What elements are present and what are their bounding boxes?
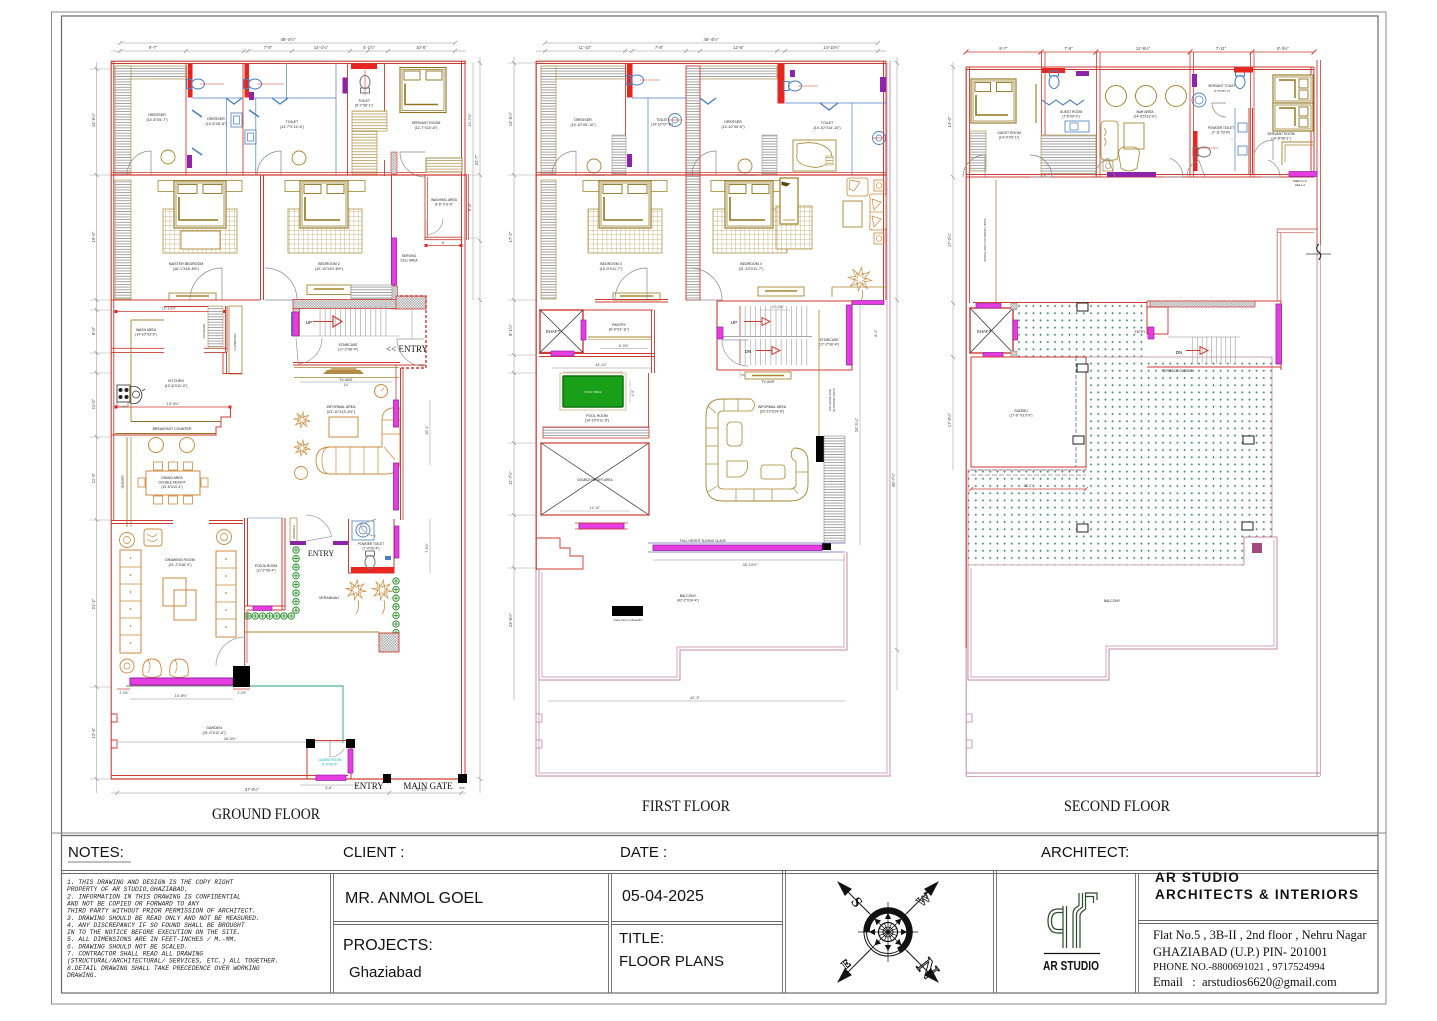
svg-text:INFORMAL AREA: INFORMAL AREA bbox=[326, 405, 356, 409]
svg-text:(7'-11"X3'-6"): (7'-11"X3'-6") bbox=[1212, 130, 1230, 134]
svg-text:17'-0½": 17'-0½" bbox=[947, 412, 952, 427]
svg-text:12'-6½": 12'-6½" bbox=[1136, 46, 1151, 51]
svg-text:7'-6": 7'-6" bbox=[1064, 46, 1073, 51]
svg-text:4. ANY DISCREPANCY IF SO FOUND: 4. ANY DISCREPANCY IF SO FOUND SHALL BE … bbox=[67, 922, 246, 929]
svg-text:DOUBLE HEIGHT: DOUBLE HEIGHT bbox=[159, 481, 186, 485]
svg-text:2'-0½": 2'-0½" bbox=[237, 691, 246, 695]
svg-text:7'-8": 7'-8" bbox=[264, 45, 273, 50]
svg-text:WASH AREA: WASH AREA bbox=[136, 328, 157, 332]
svg-text:ARCHITECTS & INTERIORS: ARCHITECTS & INTERIORS bbox=[1155, 887, 1359, 902]
svg-text:14'-6½": 14'-6½" bbox=[508, 111, 513, 126]
svg-text:7'-8": 7'-8" bbox=[655, 45, 664, 50]
svg-text:(42'-2"X24'-4"): (42'-2"X24'-4") bbox=[677, 599, 699, 603]
svg-text:VERANDAH: VERANDAH bbox=[319, 596, 339, 600]
svg-text:GUEST ROOM: GUEST ROOM bbox=[997, 131, 1021, 135]
svg-text:Email : arstudios6620@gmail: Email : arstudios6620@gmail.com bbox=[1153, 975, 1337, 989]
svg-text:21'-2": 21'-2" bbox=[91, 598, 96, 609]
svg-text:POOL TABLE: POOL TABLE bbox=[584, 390, 601, 394]
svg-text:(14'-0"X9'-1"): (14'-0"X9'-1") bbox=[999, 136, 1020, 140]
svg-text:8'-0": 8'-0" bbox=[91, 326, 96, 335]
svg-text:(11'-2"X8'-4"): (11'-2"X8'-4") bbox=[256, 569, 275, 573]
svg-text:ENTRY: ENTRY bbox=[308, 549, 334, 558]
svg-text:(14'-10"X3'-6"): (14'-10"X3'-6") bbox=[135, 333, 157, 337]
svg-text:AND NOT BE COPIED OR FORWARD T: AND NOT BE COPIED OR FORWARD TO ANY bbox=[66, 900, 200, 907]
svg-text:(14'-10"X5'-10"): (14'-10"X5'-10") bbox=[570, 123, 595, 127]
svg-text:5'-6"X6'-6": 5'-6"X6'-6" bbox=[322, 763, 338, 767]
svg-text:Flat No.5 , 3B-II , 2nd floor: Flat No.5 , 3B-II , 2nd floor , Nehru Na… bbox=[1153, 928, 1367, 942]
svg-text:7'-11": 7'-11" bbox=[1216, 46, 1227, 51]
svg-text:8'-1½": 8'-1½" bbox=[508, 324, 513, 336]
svg-text:7'-6½": 7'-6½" bbox=[425, 542, 429, 552]
svg-text:DRESSER: DRESSER bbox=[574, 118, 592, 122]
svg-text:False Floor to Beautiful: False Floor to Beautiful bbox=[614, 618, 643, 622]
svg-text:DRAWING.: DRAWING. bbox=[67, 972, 97, 979]
svg-text:8.DETAIL DRAWING SHALL TAKE PR: 8.DETAIL DRAWING SHALL TAKE PRECEDENCE O… bbox=[67, 965, 260, 972]
svg-text:13'-0½": 13'-0½" bbox=[167, 402, 180, 406]
svg-text:(14'-7"X 14'-6"): (14'-7"X 14'-6") bbox=[280, 125, 304, 129]
svg-text:PROPERTY OF AR STUDIO,GHAZIABA: PROPERTY OF AR STUDIO,GHAZIABAD. bbox=[67, 886, 188, 893]
svg-text:(10'-6"X13'-4"): (10'-6"X13'-4") bbox=[161, 485, 182, 489]
svg-text:5'-6": 5'-6" bbox=[325, 786, 333, 790]
svg-text:BREAKFAST COUNTER: BREAKFAST COUNTER bbox=[153, 427, 192, 431]
svg-text:FULL HEIGHT SLIDING GLASS: FULL HEIGHT SLIDING GLASS bbox=[680, 539, 726, 543]
svg-text:CELL-2: CELL-2 bbox=[1295, 183, 1306, 187]
svg-text:POOJA ROOM: POOJA ROOM bbox=[255, 564, 277, 568]
svg-text:6'-4": 6'-4" bbox=[467, 202, 472, 211]
svg-text:(12'-10"X10'-6½"): (12'-10"X10'-6½") bbox=[315, 267, 343, 271]
svg-text:2. INFORMATION IN THIS DRAWING: 2. INFORMATION IN THIS DRAWING IS CONFID… bbox=[67, 893, 241, 900]
svg-text:(STRUCTURAL/ARCHITECTURAL/ SER: (STRUCTURAL/ARCHITECTURAL/ SERVICES, ETC… bbox=[67, 958, 279, 965]
svg-text:46'-7½": 46'-7½" bbox=[891, 472, 896, 487]
svg-text:PROJECTS:: PROJECTS: bbox=[343, 937, 433, 954]
svg-text:□: □ bbox=[1231, 137, 1233, 141]
svg-text:MAIN GATE: MAIN GATE bbox=[403, 781, 453, 791]
svg-text:Ghaziabad: Ghaziabad bbox=[349, 964, 422, 981]
svg-text:INFORMAL AREA: INFORMAL AREA bbox=[758, 405, 787, 409]
svg-text:DN: DN bbox=[1176, 350, 1183, 355]
svg-text:6. DRAWING SHOULD NOT BE SCALE: 6. DRAWING SHOULD NOT BE SCALED. bbox=[67, 943, 188, 950]
svg-text:TV UNIT: TV UNIT bbox=[761, 380, 774, 384]
svg-text:11'-10": 11'-10" bbox=[579, 45, 592, 50]
svg-text:14': 14' bbox=[344, 383, 349, 387]
svg-text:800: 800 bbox=[459, 786, 464, 790]
svg-text:TOILET: TOILET bbox=[358, 99, 370, 103]
svg-text:(20'-10"X24'-0"): (20'-10"X24'-0") bbox=[760, 410, 784, 414]
svg-text:(14'-8"X8'-1"): (14'-8"X8'-1") bbox=[1271, 137, 1291, 141]
svg-text:42'-3": 42'-3" bbox=[690, 696, 700, 700]
svg-text:8'-7": 8'-7" bbox=[999, 46, 1008, 51]
svg-text:GROUND FLOOR: GROUND FLOOR bbox=[212, 806, 321, 823]
svg-text:26'-0½": 26'-0½" bbox=[224, 737, 237, 741]
svg-text:BAR AREA: BAR AREA bbox=[1137, 110, 1155, 114]
svg-text:12'-7½": 12'-7½" bbox=[467, 113, 472, 127]
svg-text:(7'-4"X5'-4"): (7'-4"X5'-4") bbox=[363, 546, 380, 550]
svg-text:PHONE NO.-8800691021 , 9717524: PHONE NO.-8800691021 , 9717524994 bbox=[1153, 962, 1326, 973]
svg-text:49'-4½": 49'-4½" bbox=[703, 36, 719, 42]
svg-text:6': 6' bbox=[442, 241, 445, 245]
svg-text:POWDER TOILET: POWDER TOILET bbox=[358, 542, 384, 546]
svg-text:CLIENT :: CLIENT : bbox=[343, 844, 404, 861]
svg-text:(7'-6"X9'-0"): (7'-6"X9'-0") bbox=[1062, 115, 1080, 119]
svg-text:SERVER: SERVER bbox=[121, 475, 125, 489]
svg-text:TV UNIT: TV UNIT bbox=[339, 378, 352, 382]
svg-text:(14'-6"X5'-7"): (14'-6"X5'-7") bbox=[146, 118, 167, 122]
svg-text:FIRST FLOOR: FIRST FLOOR bbox=[642, 798, 731, 815]
svg-text:SECOND FLOOR: SECOND FLOOR bbox=[1064, 798, 1171, 815]
svg-text:GAZEBO: GAZEBO bbox=[1014, 409, 1028, 413]
svg-text:8'-6" X 6'-6": 8'-6" X 6'-6" bbox=[435, 203, 453, 207]
svg-text:BEDROOM 4: BEDROOM 4 bbox=[740, 262, 762, 266]
svg-text:NOTES:: NOTES: bbox=[68, 844, 124, 861]
svg-text:(21'-2"X16'-0"): (21'-2"X16'-0") bbox=[168, 563, 191, 567]
svg-text:SERVING: SERVING bbox=[402, 254, 417, 258]
svg-text:(14'-6"X5'-6"): (14'-6"X5'-6") bbox=[205, 122, 226, 126]
svg-text:IN TO THE NOTICE BEFORE EXECUT: IN TO THE NOTICE BEFORE EXECUTION ON THE… bbox=[67, 929, 241, 936]
svg-text:10'-6": 10'-6" bbox=[416, 45, 427, 50]
svg-text:GUARD ROOM: GUARD ROOM bbox=[318, 758, 341, 762]
svg-text:DOUBLE HEIGHT AREA: DOUBLE HEIGHT AREA bbox=[577, 478, 613, 482]
svg-text:ENTRY: ENTRY bbox=[354, 781, 384, 791]
svg-text:(17'-6" X3.0'-9"): (17'-6" X3.0'-9") bbox=[1009, 414, 1032, 418]
svg-text:14'-10": 14'-10" bbox=[595, 363, 607, 367]
svg-text:DRESSER: DRESSER bbox=[148, 113, 166, 117]
svg-text:6'-4": 6'-4" bbox=[874, 329, 878, 337]
svg-text:16'-0": 16'-0" bbox=[91, 231, 96, 242]
svg-text:(12'-6"X11'-0"): (12'-6"X11'-0") bbox=[165, 384, 188, 388]
svg-text:CELL AREA: CELL AREA bbox=[400, 258, 418, 262]
svg-text:05-04-2025: 05-04-2025 bbox=[622, 888, 704, 905]
svg-text:SPACE FOR OUTDOOR UNITS: SPACE FOR OUTDOOR UNITS bbox=[983, 218, 987, 261]
svg-text:12'-6": 12'-6" bbox=[733, 45, 744, 50]
svg-text:STAIRCASE: STAIRCASE bbox=[820, 338, 840, 342]
svg-text:28'-10½": 28'-10½" bbox=[743, 563, 759, 567]
svg-text:DATE :: DATE : bbox=[620, 844, 667, 861]
svg-text:14'-6½": 14'-6½" bbox=[91, 112, 96, 127]
svg-text:(17'-2"X8'-4"): (17'-2"X8'-4") bbox=[819, 343, 839, 347]
svg-text:37'-0½": 37'-0½" bbox=[245, 787, 260, 792]
svg-text:18'-2": 18'-2" bbox=[1023, 484, 1033, 488]
svg-text:17'-2": 17'-2" bbox=[508, 231, 513, 242]
svg-text:UP: UP bbox=[731, 320, 737, 325]
svg-text:SHAFT: SHAFT bbox=[977, 329, 992, 334]
svg-text:(15'-0"X11'-7"): (15'-0"X11'-7") bbox=[600, 267, 623, 271]
svg-text:11'-7½": 11'-7½" bbox=[508, 471, 513, 485]
svg-text:GARDEN: GARDEN bbox=[206, 726, 222, 730]
svg-text:AR STUDIO: AR STUDIO bbox=[1155, 870, 1240, 885]
svg-text:DRESSER: DRESSER bbox=[724, 120, 742, 124]
svg-text:GHAZIABAD (U.P.) PIN- 201001: GHAZIABAD (U.P.) PIN- 201001 bbox=[1153, 945, 1328, 959]
svg-text:31'-7": 31'-7" bbox=[474, 154, 479, 165]
svg-text:DRESSER: DRESSER bbox=[207, 117, 225, 121]
svg-text:BALCONY: BALCONY bbox=[1104, 599, 1121, 603]
svg-text:SERVANT ROOM: SERVANT ROOM bbox=[1267, 132, 1294, 136]
svg-text:MASTER BEDROOM: MASTER BEDROOM bbox=[169, 262, 204, 266]
svg-text:TOILET: TOILET bbox=[821, 121, 834, 125]
svg-text:5. ALL DIMENSIONS ARE IN FEET-: 5. ALL DIMENSIONS ARE IN FEET-INCHES / M… bbox=[67, 936, 237, 943]
svg-text:BEDROOM 2: BEDROOM 2 bbox=[318, 262, 340, 266]
svg-text:(14'-6")X12'-6"): (14'-6")X12'-6") bbox=[1134, 115, 1157, 119]
svg-text:17'-2½": 17'-2½" bbox=[772, 305, 785, 309]
svg-text:TERRACE GARDEN: TERRACE GARDEN bbox=[1162, 369, 1194, 373]
svg-text:(7'-5"X5'-7"): (7'-5"X5'-7") bbox=[1214, 89, 1230, 93]
svg-text:24'-1½": 24'-1½" bbox=[854, 417, 859, 432]
svg-text:OUTDOOR UNITS: OUTDOOR UNITS bbox=[832, 388, 836, 412]
svg-text:CONSOLE: CONSOLE bbox=[292, 525, 296, 539]
svg-text:2'-0½": 2'-0½" bbox=[119, 691, 128, 695]
svg-text:ENTRY: ENTRY bbox=[1135, 330, 1147, 334]
svg-text:<< ENTRY: << ENTRY bbox=[386, 344, 428, 354]
svg-text:14'-6": 14'-6" bbox=[947, 116, 952, 127]
svg-text:11'-5": 11'-5" bbox=[91, 472, 96, 483]
svg-text:(14'-10"X5'-6"): (14'-10"X5'-6") bbox=[721, 125, 744, 129]
svg-text:SERVANT ROOM: SERVANT ROOM bbox=[412, 121, 441, 125]
svg-text:7. CONTRACTOR SHALL READ ALL D: 7. CONTRACTOR SHALL READ ALL DRAWING bbox=[67, 951, 203, 958]
svg-text:TOILET: TOILET bbox=[656, 118, 668, 122]
svg-text:6'-9½": 6'-9½" bbox=[619, 344, 630, 348]
svg-text:MR. ANMOL GOEL: MR. ANMOL GOEL bbox=[345, 890, 483, 907]
svg-text:GUEST ROOM: GUEST ROOM bbox=[1060, 110, 1083, 114]
svg-text:(16'-1"X16'-8½"): (16'-1"X16'-8½") bbox=[173, 267, 199, 271]
svg-text:DRAWING ROOM: DRAWING ROOM bbox=[165, 558, 194, 562]
svg-text:TITLE:: TITLE: bbox=[619, 930, 664, 947]
svg-text:10'-8½": 10'-8½" bbox=[175, 694, 188, 698]
svg-text:KITCHEN: KITCHEN bbox=[168, 379, 184, 383]
svg-text:(6'-9"X3'-11"): (6'-9"X3'-11") bbox=[609, 328, 629, 332]
svg-text:8'-3½": 8'-3½" bbox=[1277, 46, 1289, 51]
svg-text:12'-6": 12'-6" bbox=[91, 727, 96, 738]
svg-text:POWDER TOILET: POWDER TOILET bbox=[1208, 126, 1234, 130]
svg-text:3. DRAWING SHOULD BE READ ONLY: 3. DRAWING SHOULD BE READ ONLY AND NOT B… bbox=[67, 915, 260, 922]
svg-text:4'-5": 4'-5" bbox=[631, 390, 635, 396]
svg-text:(23'-11"X13'-4½"): (23'-11"X13'-4½") bbox=[327, 410, 355, 414]
svg-text:THIRD PARTY WITHOUT PRIOR PERM: THIRD PARTY WITHOUT PRIOR PERMISSION OF … bbox=[67, 908, 256, 915]
svg-text:(17'-2"X8'-4"): (17'-2"X8'-4") bbox=[338, 348, 358, 352]
svg-text:STORAGE: STORAGE bbox=[202, 324, 206, 339]
svg-text:DINING AREA: DINING AREA bbox=[161, 476, 183, 480]
svg-text:20'-1": 20'-1" bbox=[425, 425, 429, 435]
svg-text:STAIRCASE: STAIRCASE bbox=[339, 343, 359, 347]
svg-text:4'-1½": 4'-1½" bbox=[363, 45, 375, 50]
svg-text:1. THIS DRAWING AND DESIGN I: 1. THIS DRAWING AND DESIGN IS THE COPY R… bbox=[67, 879, 234, 886]
svg-text:UP: UP bbox=[306, 320, 312, 325]
svg-text:14'-10½": 14'-10½" bbox=[823, 45, 840, 50]
svg-text:14'-10": 14'-10" bbox=[590, 506, 601, 510]
svg-text:BEDROOM 3: BEDROOM 3 bbox=[600, 262, 622, 266]
svg-text:SHAFT: SHAFT bbox=[546, 329, 561, 334]
svg-text:DN: DN bbox=[745, 349, 752, 354]
svg-text:SERVANT TOILET: SERVANT TOILET bbox=[1208, 84, 1236, 88]
svg-text:(5'-7"X6'-1"): (5'-7"X6'-1") bbox=[355, 104, 373, 108]
svg-text:(14'-10"X11'-9"): (14'-10"X11'-9") bbox=[585, 419, 609, 423]
svg-text:PANTRY: PANTRY bbox=[612, 323, 627, 327]
svg-text:11'-0": 11'-0" bbox=[91, 398, 96, 409]
svg-text:14'-1½": 14'-1½" bbox=[314, 45, 329, 50]
svg-text:FLOOR PLANS: FLOOR PLANS bbox=[619, 953, 724, 970]
svg-text:WASHING AREA: WASHING AREA bbox=[431, 198, 458, 202]
svg-text:(11'-7"X10'-6"): (11'-7"X10'-6") bbox=[415, 126, 438, 130]
svg-text:AR STUDIO: AR STUDIO bbox=[1043, 959, 1099, 973]
svg-text:BALCONY: BALCONY bbox=[680, 594, 697, 598]
svg-text:9'-7": 9'-7" bbox=[149, 45, 158, 50]
svg-text:CUPBOARD: CUPBOARD bbox=[233, 333, 237, 351]
svg-text:(14'-10"X14'-10"): (14'-10"X14'-10") bbox=[813, 126, 840, 130]
svg-text:(31'-0"X12'-6"): (31'-0"X12'-6") bbox=[202, 731, 225, 735]
svg-text:POOL ROOM: POOL ROOM bbox=[586, 414, 608, 418]
svg-text:23'-6½": 23'-6½" bbox=[508, 612, 513, 627]
svg-text:(21'-10"X11'-7"): (21'-10"X11'-7") bbox=[739, 267, 764, 271]
svg-text:17'-2½": 17'-2½" bbox=[947, 232, 952, 247]
svg-text:10'-10½": 10'-10½" bbox=[162, 307, 177, 311]
svg-text:49'-4½": 49'-4½" bbox=[280, 36, 296, 42]
svg-text:TOILET: TOILET bbox=[286, 120, 299, 124]
svg-text:(14'-10"X7'-8"): (14'-10"X7'-8") bbox=[651, 123, 673, 127]
svg-text:ARCHITECT:: ARCHITECT: bbox=[1041, 844, 1129, 861]
